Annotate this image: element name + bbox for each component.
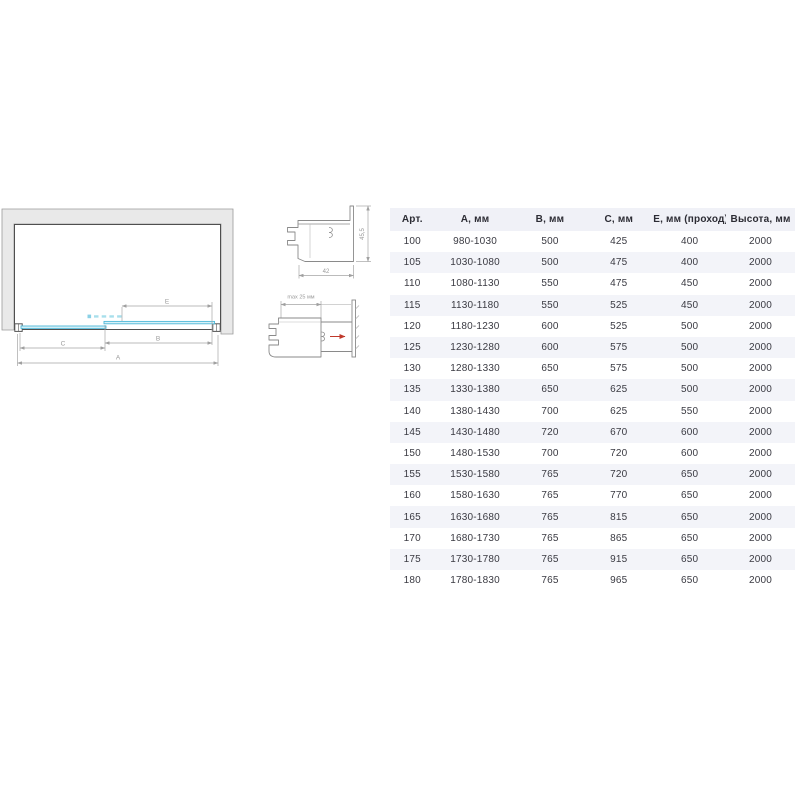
table-cell: 915 bbox=[584, 554, 653, 565]
table-cell: 865 bbox=[584, 533, 653, 544]
table-row: 1301280-13306505755002000 bbox=[390, 358, 795, 379]
table-cell: 500 bbox=[653, 321, 726, 332]
table-cell: 2000 bbox=[726, 490, 795, 501]
table-cell: 2000 bbox=[726, 406, 795, 417]
table-cell: 650 bbox=[516, 363, 585, 374]
table-cell: 500 bbox=[653, 363, 726, 374]
table-cell: 1330-1380 bbox=[435, 384, 516, 395]
table-row: 1251230-12806005755002000 bbox=[390, 337, 795, 358]
table-cell: 500 bbox=[516, 236, 585, 247]
table-row: 1501480-15307007206002000 bbox=[390, 443, 795, 464]
table-cell: 1080-1130 bbox=[435, 278, 516, 289]
table-cell: 1630-1680 bbox=[435, 512, 516, 523]
table-cell: 145 bbox=[390, 427, 435, 438]
wall-profile-section-bottom: max 25 мм bbox=[269, 295, 359, 358]
table-header-e: Е, мм (проход) bbox=[653, 214, 726, 225]
table-cell: 2000 bbox=[726, 300, 795, 311]
profile2-outline bbox=[269, 318, 321, 357]
dim-label-e: E bbox=[165, 299, 170, 306]
table-cell: 180 bbox=[390, 575, 435, 586]
table-cell: 2000 bbox=[726, 448, 795, 459]
table-cell: 650 bbox=[653, 469, 726, 480]
table-cell: 110 bbox=[390, 278, 435, 289]
table-row: 1201180-12306005255002000 bbox=[390, 316, 795, 337]
sliding-glass-panel bbox=[104, 321, 215, 323]
table-row: 1451430-14807206706002000 bbox=[390, 422, 795, 443]
technical-drawing: E B C A bbox=[0, 195, 390, 605]
table-header-c: С, мм bbox=[584, 214, 653, 225]
opening-rect bbox=[15, 225, 221, 330]
table-cell: 170 bbox=[390, 533, 435, 544]
table-cell: 650 bbox=[653, 490, 726, 501]
table-cell: 575 bbox=[584, 363, 653, 374]
table-cell: 155 bbox=[390, 469, 435, 480]
table-cell: 965 bbox=[584, 575, 653, 586]
table-cell: 160 bbox=[390, 490, 435, 501]
table-cell: 2000 bbox=[726, 575, 795, 586]
table-cell: 2000 bbox=[726, 278, 795, 289]
table-row: 1701680-17307658656502000 bbox=[390, 528, 795, 549]
table-cell: 2000 bbox=[726, 384, 795, 395]
table-cell: 400 bbox=[653, 236, 726, 247]
table-cell: 1280-1330 bbox=[435, 363, 516, 374]
technical-drawing-svg: E B C A bbox=[0, 195, 390, 605]
table-cell: 650 bbox=[653, 512, 726, 523]
table-cell: 2000 bbox=[726, 257, 795, 268]
table-row: 1401380-14307006255502000 bbox=[390, 401, 795, 422]
spec-table-body: 100980-103050042540020001051030-10805004… bbox=[390, 231, 795, 591]
table-row: 1751730-17807659156502000 bbox=[390, 549, 795, 570]
table-cell: 165 bbox=[390, 512, 435, 523]
table-cell: 2000 bbox=[726, 363, 795, 374]
table-cell: 120 bbox=[390, 321, 435, 332]
table-cell: 2000 bbox=[726, 342, 795, 353]
table-row: 1601580-16307657706502000 bbox=[390, 485, 795, 506]
table-cell: 475 bbox=[584, 257, 653, 268]
table-cell: 700 bbox=[516, 448, 585, 459]
table-cell: 500 bbox=[516, 257, 585, 268]
dim-label-b: B bbox=[156, 336, 160, 343]
table-cell: 1780-1830 bbox=[435, 575, 516, 586]
table-cell: 600 bbox=[516, 342, 585, 353]
table-cell: 700 bbox=[516, 406, 585, 417]
spec-sheet: E B C A bbox=[0, 0, 800, 800]
table-header-b: В, мм bbox=[516, 214, 585, 225]
table-header-height: Высота, мм bbox=[726, 214, 795, 225]
dim-label-c: C bbox=[61, 341, 66, 348]
table-header-row: Арт. А, мм В, мм С, мм Е, мм (проход) Вы… bbox=[390, 208, 795, 231]
table-cell: 525 bbox=[584, 321, 653, 332]
top-view-drawing: E B C A bbox=[2, 209, 233, 366]
table-cell: 720 bbox=[584, 469, 653, 480]
table-cell: 765 bbox=[516, 512, 585, 523]
table-cell: 650 bbox=[653, 554, 726, 565]
table-cell: 1530-1580 bbox=[435, 469, 516, 480]
table-cell: 650 bbox=[516, 384, 585, 395]
dimensions-table: Арт. А, мм В, мм С, мм Е, мм (проход) Вы… bbox=[390, 208, 795, 591]
table-row: 1151130-11805505254502000 bbox=[390, 295, 795, 316]
table-cell: 720 bbox=[516, 427, 585, 438]
table-cell: 175 bbox=[390, 554, 435, 565]
table-cell: 550 bbox=[653, 406, 726, 417]
table-cell: 140 bbox=[390, 406, 435, 417]
table-cell: 650 bbox=[653, 533, 726, 544]
table-cell: 625 bbox=[584, 406, 653, 417]
table-cell: 500 bbox=[653, 342, 726, 353]
table-row: 1551530-15807657206502000 bbox=[390, 464, 795, 485]
table-cell: 130 bbox=[390, 363, 435, 374]
table-cell: 400 bbox=[653, 257, 726, 268]
profile1-outline bbox=[288, 206, 354, 262]
table-cell: 765 bbox=[516, 554, 585, 565]
table-cell: 105 bbox=[390, 257, 435, 268]
profile2-hatching bbox=[356, 306, 360, 350]
table-cell: 2000 bbox=[726, 533, 795, 544]
table-cell: 450 bbox=[653, 300, 726, 311]
table-cell: 150 bbox=[390, 448, 435, 459]
table-cell: 2000 bbox=[726, 512, 795, 523]
table-cell: 765 bbox=[516, 469, 585, 480]
table-row: 100980-10305004254002000 bbox=[390, 231, 795, 252]
table-cell: 575 bbox=[584, 342, 653, 353]
table-cell: 115 bbox=[390, 300, 435, 311]
slide-indicator-square bbox=[88, 315, 92, 319]
table-cell: 670 bbox=[584, 427, 653, 438]
table-cell: 2000 bbox=[726, 236, 795, 247]
table-cell: 550 bbox=[516, 278, 585, 289]
table-cell: 1580-1630 bbox=[435, 490, 516, 501]
table-cell: 1380-1430 bbox=[435, 406, 516, 417]
table-cell: 525 bbox=[584, 300, 653, 311]
dim-label-a: A bbox=[116, 355, 121, 362]
profile2-screw-boss bbox=[322, 332, 325, 341]
table-cell: 1430-1480 bbox=[435, 427, 516, 438]
table-cell: 765 bbox=[516, 490, 585, 501]
wall-profile-section-top: 42 45,5 bbox=[288, 206, 372, 279]
table-cell: 2000 bbox=[726, 554, 795, 565]
table-header-a: А, мм bbox=[435, 214, 516, 225]
table-row: 1801780-18307659656502000 bbox=[390, 570, 795, 591]
table-cell: 765 bbox=[516, 533, 585, 544]
table-row: 1351330-13806506255002000 bbox=[390, 379, 795, 400]
table-cell: 2000 bbox=[726, 469, 795, 480]
table-cell: 770 bbox=[584, 490, 653, 501]
table-cell: 600 bbox=[516, 321, 585, 332]
table-cell: 815 bbox=[584, 512, 653, 523]
table-cell: 550 bbox=[516, 300, 585, 311]
table-cell: 125 bbox=[390, 342, 435, 353]
table-row: 1051030-10805004754002000 bbox=[390, 252, 795, 273]
table-cell: 135 bbox=[390, 384, 435, 395]
table-cell: 450 bbox=[653, 278, 726, 289]
table-cell: 650 bbox=[653, 575, 726, 586]
table-cell: 1230-1280 bbox=[435, 342, 516, 353]
profile2-glass-fin bbox=[352, 300, 356, 357]
table-cell: 625 bbox=[584, 384, 653, 395]
profile1-width-label: 42 bbox=[323, 269, 330, 275]
table-cell: 1680-1730 bbox=[435, 533, 516, 544]
table-row: 1651630-16807658156502000 bbox=[390, 506, 795, 527]
table-cell: 600 bbox=[653, 448, 726, 459]
table-cell: 500 bbox=[653, 384, 726, 395]
table-cell: 2000 bbox=[726, 427, 795, 438]
table-cell: 1730-1780 bbox=[435, 554, 516, 565]
profile2-adjust-label: max 25 мм bbox=[287, 295, 314, 301]
table-header-art: Арт. bbox=[390, 214, 435, 225]
table-cell: 425 bbox=[584, 236, 653, 247]
table-cell: 1180-1230 bbox=[435, 321, 516, 332]
profile1-height-label: 45,5 bbox=[360, 228, 366, 240]
table-cell: 765 bbox=[516, 575, 585, 586]
table-cell: 1030-1080 bbox=[435, 257, 516, 268]
table-cell: 720 bbox=[584, 448, 653, 459]
table-cell: 600 bbox=[653, 427, 726, 438]
table-cell: 980-1030 bbox=[435, 236, 516, 247]
fixed-glass-panel bbox=[21, 326, 106, 328]
table-cell: 1130-1180 bbox=[435, 300, 516, 311]
table-cell: 2000 bbox=[726, 321, 795, 332]
table-cell: 475 bbox=[584, 278, 653, 289]
table-row: 1101080-11305504754502000 bbox=[390, 273, 795, 294]
table-cell: 100 bbox=[390, 236, 435, 247]
table-cell: 1480-1530 bbox=[435, 448, 516, 459]
